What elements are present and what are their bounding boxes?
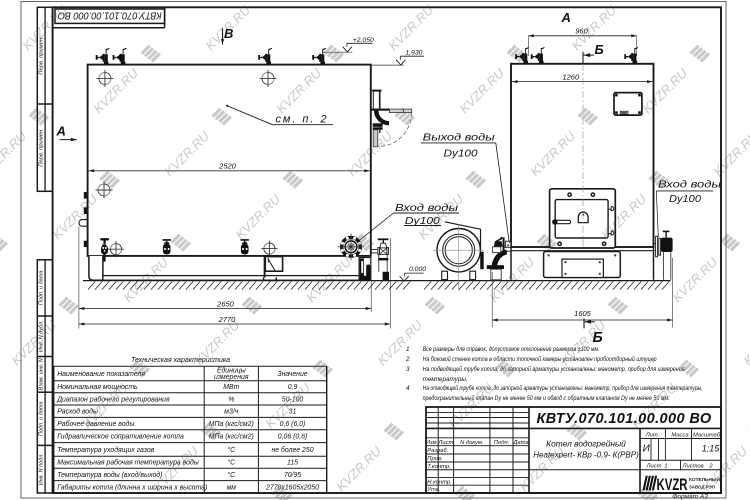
svg-text:На боковой стенке котла в обла: На боковой стенке котла в области топочн…: [423, 355, 657, 363]
svg-text:Dy100: Dy100: [444, 148, 478, 160]
svg-text:1260: 1260: [562, 72, 580, 81]
svg-text:МПа (кгс/см2): МПа (кгс/см2): [209, 421, 254, 428]
svg-text:Габариты котла (длинна х ширин: Габариты котла (длинна х ширина х высота…: [57, 483, 207, 491]
svg-text:Листов: Листов: [682, 463, 704, 469]
svg-text:Инв. N подл.: Инв. N подл.: [38, 453, 44, 485]
svg-text:1605: 1605: [574, 309, 592, 318]
svg-text:Н.контр.: Н.контр.: [427, 479, 452, 485]
svg-text:°С: °С: [227, 459, 236, 467]
svg-text:4: 4: [406, 385, 410, 392]
svg-text:2770х1605х2050: 2770х1605х2050: [265, 484, 319, 491]
svg-text:Т.контр.: Т.контр.: [427, 464, 450, 470]
svg-text:Лит.: Лит.: [645, 433, 660, 439]
svg-text:Масса: Масса: [671, 433, 689, 439]
svg-text:0.000: 0.000: [409, 266, 426, 273]
svg-text:1: 1: [664, 463, 667, 469]
svg-text:2650: 2650: [216, 299, 235, 308]
svg-text:Подп.: Подп.: [494, 440, 509, 446]
svg-text:%: %: [228, 396, 234, 403]
svg-text:Наименование показателя: Наименование показателя: [57, 371, 145, 378]
svg-text:°С: °С: [227, 446, 236, 454]
svg-text:не более 250: не более 250: [271, 446, 313, 454]
svg-text:1: 1: [406, 346, 410, 353]
svg-text:КВТУ.070.101.00.000 ВО: КВТУ.070.101.00.000 ВО: [536, 411, 711, 427]
svg-text:3: 3: [406, 366, 410, 373]
svg-text:Пров.: Пров.: [427, 456, 442, 462]
svg-text:Значение: Значение: [277, 371, 307, 378]
svg-text:1,930: 1,930: [405, 50, 422, 57]
svg-text:А: А: [561, 10, 571, 25]
svg-text:Температура уходящих газов: Температура уходящих газов: [57, 446, 155, 454]
svg-text:Подп. и дата: Подп. и дата: [38, 402, 44, 436]
svg-text:1:15: 1:15: [702, 443, 721, 453]
svg-text:Формат А3: Формат А3: [672, 493, 708, 500]
svg-text:предохранительный клапан Dy н: предохранительный клапан Dy не менее 50 …: [423, 394, 670, 402]
svg-text:KVZR: KVZR: [657, 476, 688, 494]
svg-text:2: 2: [405, 356, 410, 363]
svg-text:измерения: измерения: [214, 374, 249, 381]
svg-text:Подп. и дата: Подп. и дата: [38, 271, 44, 305]
svg-text:мм: мм: [227, 484, 237, 491]
svg-text:Изм.: Изм.: [426, 440, 438, 446]
svg-text:Разраб.: Разраб.: [427, 448, 448, 454]
svg-text:Б: Б: [595, 42, 604, 57]
svg-text:Выход воды: Выход воды: [423, 131, 495, 143]
svg-text:0,6 (6,0): 0,6 (6,0): [280, 421, 306, 428]
svg-text:70/95: 70/95: [284, 472, 301, 479]
svg-text:Перв. примен.: Перв. примен.: [38, 128, 44, 167]
svg-text:Утв.: Утв.: [426, 487, 440, 493]
svg-text:Гидравлическое сопративление к: Гидравлическое сопративление котла: [57, 433, 184, 441]
svg-text:На подводящей трубе котла, д: На подводящей трубе котла, до запорной а…: [423, 365, 686, 373]
svg-text:МВт: МВт: [223, 384, 239, 391]
svg-text:Лист: Лист: [646, 463, 662, 469]
svg-text:А: А: [56, 124, 66, 139]
svg-text:КВТУ.070.101.00.000 ВО: КВТУ.070.101.00.000 ВО: [58, 10, 162, 22]
svg-text:°С: °С: [227, 471, 236, 479]
svg-text:температуры.: температуры.: [423, 376, 468, 383]
svg-text:Температура воды (вход/выход): Температура воды (вход/выход): [57, 471, 162, 479]
svg-text:Dy100: Dy100: [669, 193, 701, 205]
svg-text:2520: 2520: [218, 162, 237, 171]
svg-text:N докум.: N докум.: [460, 440, 483, 446]
svg-text:+2,050: +2,050: [353, 37, 374, 44]
svg-text:Масштаб: Масштаб: [693, 433, 721, 439]
svg-text:м3/ч: м3/ч: [224, 409, 238, 416]
svg-text:0,06 (0,6): 0,06 (0,6): [278, 434, 308, 441]
svg-text:115: 115: [287, 460, 298, 467]
svg-text:Лист: Лист: [437, 440, 453, 446]
svg-text:Дата: Дата: [512, 440, 529, 446]
svg-text:Взам. инв. N: Взам. инв. N: [38, 358, 44, 390]
svg-text:И: И: [643, 444, 651, 455]
svg-text:Техническая характеристика: Техническая характеристика: [131, 357, 230, 364]
